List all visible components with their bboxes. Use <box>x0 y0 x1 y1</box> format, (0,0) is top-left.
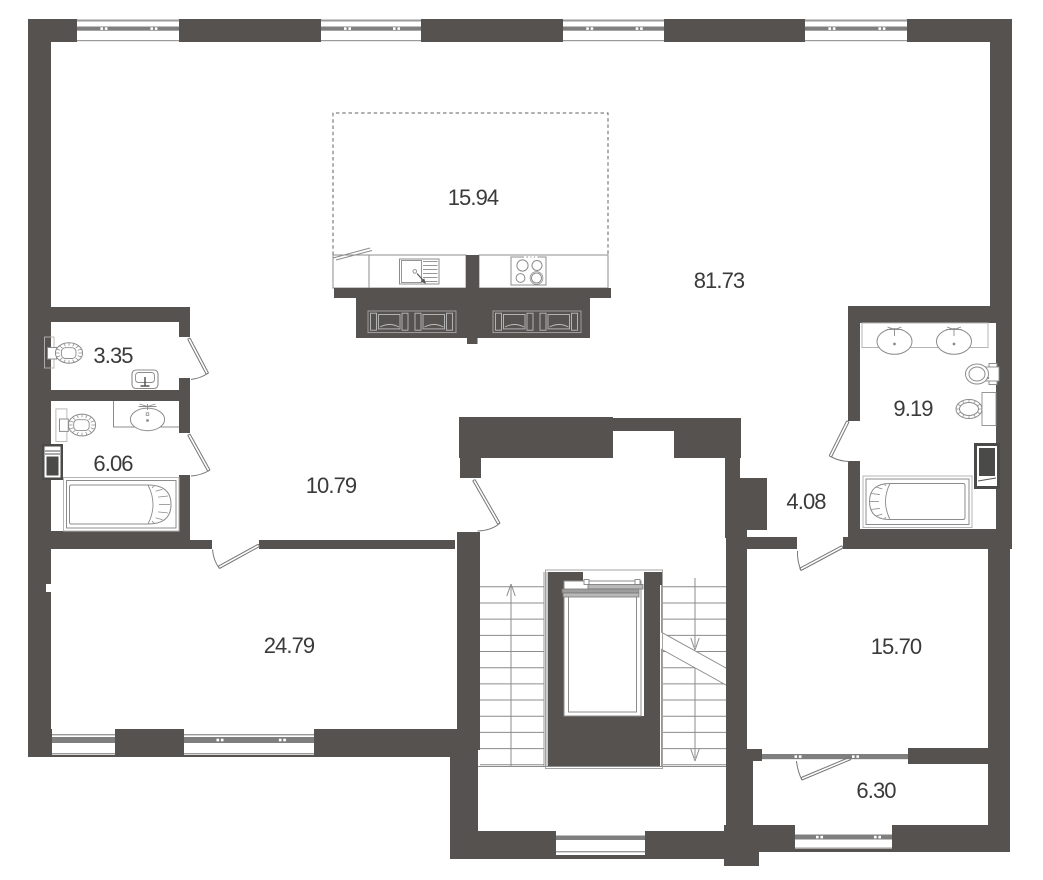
svg-text:15.70: 15.70 <box>871 634 922 659</box>
svg-text:10.79: 10.79 <box>306 473 357 498</box>
svg-text:15.94: 15.94 <box>448 185 499 210</box>
svg-text:81.73: 81.73 <box>694 268 745 293</box>
svg-text:3.35: 3.35 <box>93 343 133 368</box>
svg-text:6.30: 6.30 <box>856 778 896 803</box>
svg-text:6.06: 6.06 <box>93 451 133 476</box>
svg-text:24.79: 24.79 <box>264 633 315 658</box>
svg-text:4.08: 4.08 <box>786 489 826 514</box>
svg-text:9.19: 9.19 <box>893 396 933 421</box>
